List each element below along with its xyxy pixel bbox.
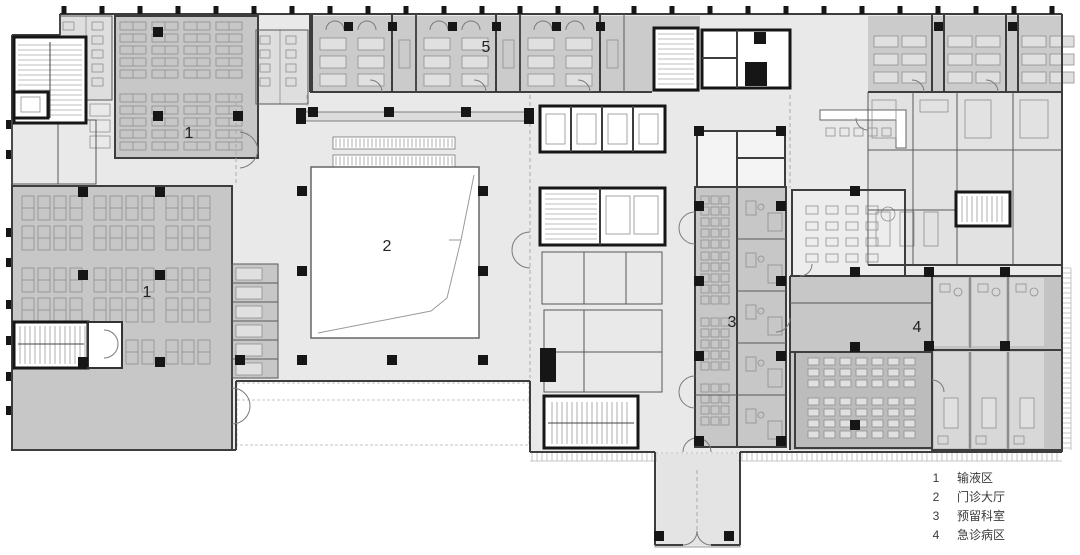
area-label-infusion-lower: 1 [143, 284, 152, 301]
legend: 1 输液区 2 门诊大厅 3 预留科室 4 急诊病区 [933, 470, 1005, 542]
legend-label-infusion: 输液区 [957, 470, 993, 485]
legend-num-2: 2 [933, 490, 940, 504]
legend-num-4: 4 [933, 528, 940, 542]
area-label-emergency-ward: 4 [913, 319, 922, 336]
area-label-ward-strip: 5 [482, 39, 491, 56]
area-label-reserved-departments: 3 [728, 314, 737, 331]
area-label-infusion-upper: 1 [185, 125, 194, 142]
floor-plan-drawing: 1 1 2 3 4 5 1 输液区 2 门诊大厅 3 预留科室 4 急诊病区 [0, 0, 1080, 555]
floor-plan-page: 1 1 2 3 4 5 1 输液区 2 门诊大厅 3 预留科室 4 急诊病区 [0, 0, 1080, 555]
legend-label-outpatient-hall: 门诊大厅 [957, 489, 1005, 504]
legend-label-reserved: 预留科室 [957, 508, 1005, 523]
area-label-outpatient-hall: 2 [383, 238, 392, 255]
legend-label-emergency: 急诊病区 [957, 527, 1005, 542]
legend-num-3: 3 [933, 509, 940, 523]
legend-num-1: 1 [933, 471, 940, 485]
